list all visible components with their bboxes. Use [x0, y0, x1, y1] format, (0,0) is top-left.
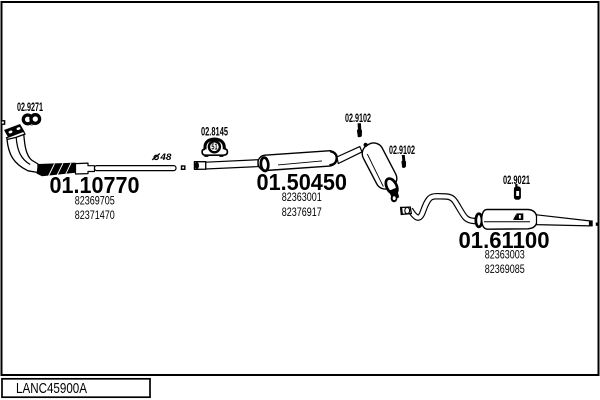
svg-text:82363003: 82363003	[485, 248, 525, 262]
svg-text:82371470: 82371470	[75, 208, 115, 222]
svg-text:02.8145: 02.8145	[201, 126, 228, 138]
svg-text:82369085: 82369085	[485, 262, 525, 276]
svg-text:48: 48	[159, 152, 172, 162]
svg-text:02.9102: 02.9102	[345, 113, 371, 125]
svg-text:51: 51	[211, 143, 218, 152]
svg-text:LANC45900A: LANC45900A	[16, 380, 87, 397]
svg-text:82376917: 82376917	[282, 205, 322, 219]
svg-text:02.9271: 02.9271	[17, 102, 43, 114]
svg-text:82369705: 82369705	[75, 193, 115, 207]
svg-text:02.9102: 02.9102	[389, 145, 415, 157]
svg-text:82363001: 82363001	[282, 190, 322, 204]
svg-text:02.9021: 02.9021	[503, 175, 530, 187]
